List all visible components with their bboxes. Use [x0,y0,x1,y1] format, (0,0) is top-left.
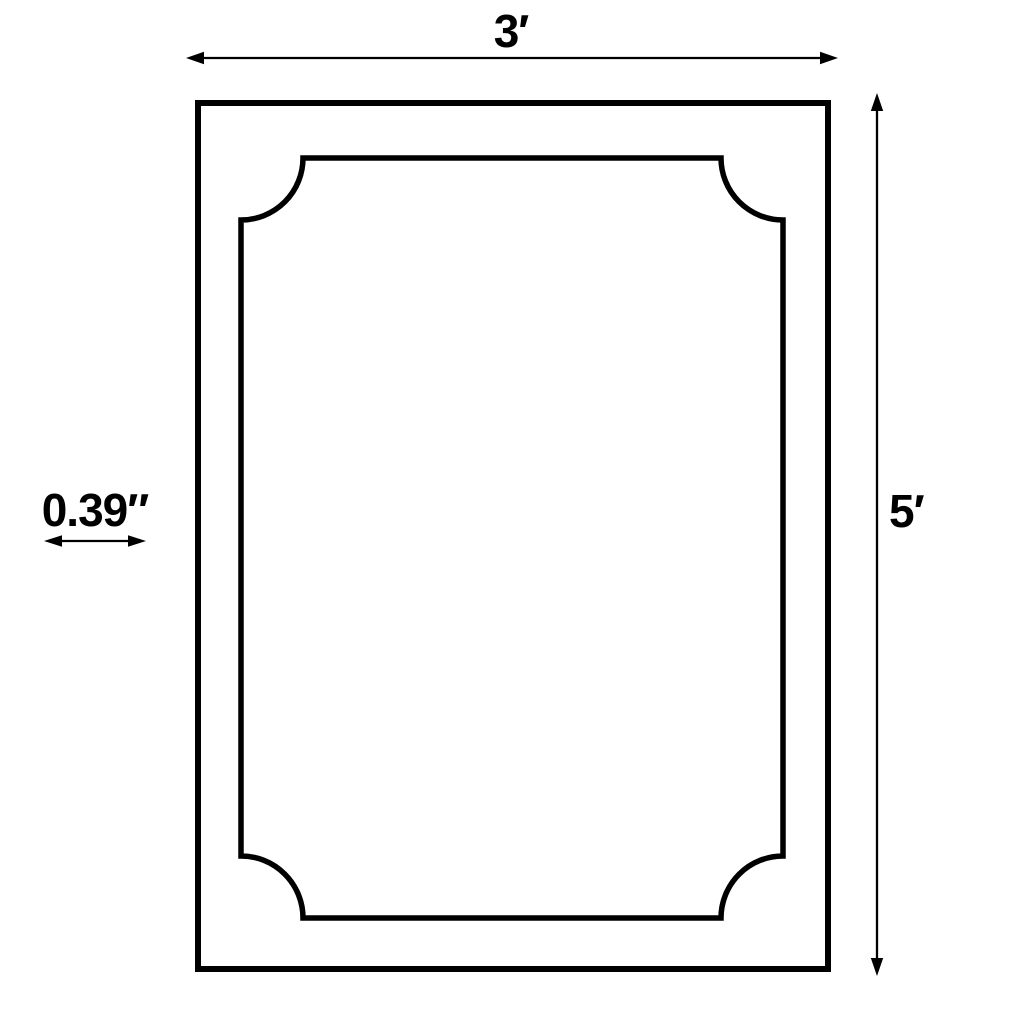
height-dimension-label: 5′ [889,485,925,537]
frame-dimension-diagram: 3′ 5′ 0.39″ [0,0,1024,1024]
arrowhead-right-icon [820,52,838,64]
arrowhead-down-icon [871,958,883,976]
arrowhead-left-icon [44,535,62,547]
width-dimension-label: 3′ [494,5,530,57]
height-dimension: 5′ [871,93,925,976]
arrowhead-right-icon [128,535,146,547]
width-dimension: 3′ [186,5,838,64]
diagram-canvas: 3′ 5′ 0.39″ [0,0,1024,1024]
thickness-dimension-label: 0.39″ [42,484,150,536]
arrowhead-left-icon [186,52,204,64]
inner-panel-outline [241,158,783,918]
arrowhead-up-icon [871,93,883,111]
outer-frame-outline [198,103,828,969]
thickness-dimension: 0.39″ [42,484,150,547]
